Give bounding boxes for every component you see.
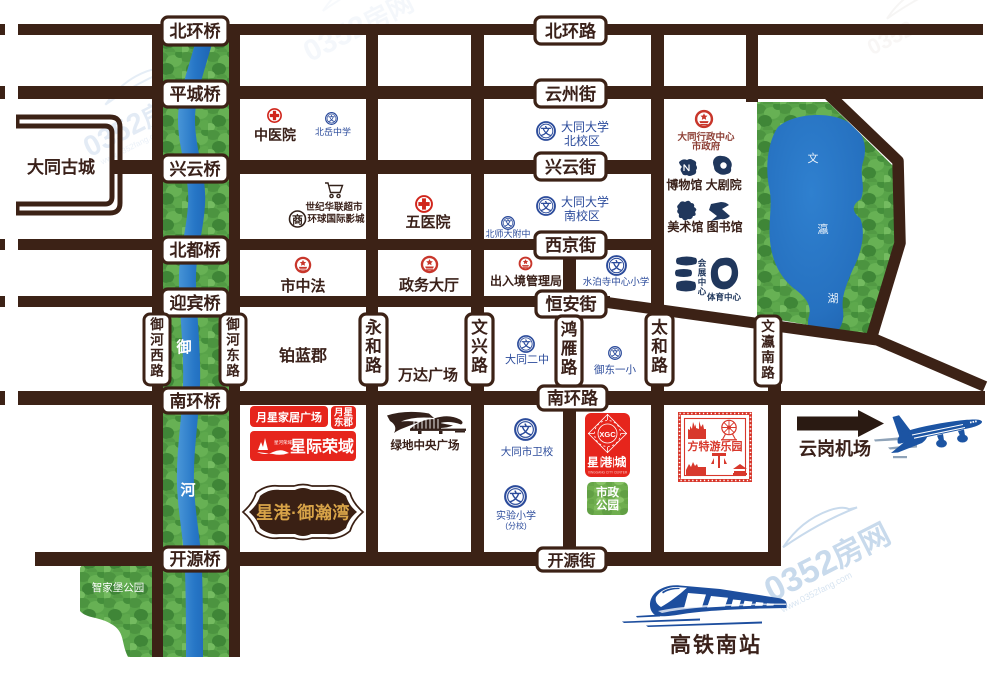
svg-text:月星家居广场: 月星家居广场 [255, 410, 322, 424]
svg-text:兴云桥: 兴云桥 [170, 160, 222, 179]
svg-text:市中法: 市中法 [280, 277, 325, 295]
svg-text:商: 商 [292, 213, 303, 227]
svg-text:平城桥: 平城桥 [170, 85, 222, 104]
svg-text:大同二中: 大同二中 [505, 352, 549, 366]
svg-text:五医院: 五医院 [405, 213, 450, 231]
svg-text:湖: 湖 [828, 292, 839, 305]
svg-text:万达广场: 万达广场 [397, 366, 458, 384]
svg-text:北环路: 北环路 [545, 21, 597, 41]
svg-text:星港城: 星港城 [587, 455, 628, 469]
svg-text:会展中心: 会展中心 [697, 258, 707, 297]
svg-text:御东一小: 御东一小 [594, 363, 636, 376]
svg-text:铂蓝郡: 铂蓝郡 [279, 346, 327, 365]
svg-text:月星东郡: 月星东郡 [333, 408, 354, 429]
svg-text:智家堡公园: 智家堡公园 [92, 581, 145, 594]
svg-text:星际荣域: 星际荣域 [290, 437, 354, 456]
svg-text:瀛: 瀛 [818, 222, 829, 236]
svg-text:御: 御 [175, 338, 191, 356]
svg-text:御河东路: 御河东路 [225, 316, 240, 379]
svg-text:美术馆 图书馆: 美术馆 图书馆 [667, 219, 742, 234]
svg-text:大同市卫校: 大同市卫校 [501, 445, 554, 458]
svg-text:文: 文 [808, 151, 819, 165]
svg-text:云州街: 云州街 [545, 84, 596, 104]
svg-text:出入境管理局: 出入境管理局 [490, 273, 562, 288]
svg-text:政务大厅: 政务大厅 [399, 276, 459, 294]
svg-text:博物馆 大剧院: 博物馆 大剧院 [666, 177, 741, 192]
svg-text:太和路: 太和路 [651, 317, 668, 375]
svg-text:方特游乐园: 方特游乐园 [688, 439, 743, 453]
svg-text:永和路: 永和路 [364, 317, 382, 375]
svg-text:兴云街: 兴云街 [545, 157, 596, 177]
svg-text:北都桥: 北都桥 [170, 240, 222, 260]
svg-text:文瀛南路: 文瀛南路 [761, 318, 775, 381]
svg-text:御河西路: 御河西路 [149, 316, 164, 379]
svg-text:XINGGANG CITY CENTER: XINGGANG CITY CENTER [588, 471, 628, 475]
svg-text:绿地中央广场: 绿地中央广场 [391, 438, 460, 452]
svg-text:文兴路: 文兴路 [471, 317, 488, 375]
svg-text:南环桥: 南环桥 [170, 391, 222, 411]
svg-text:XGC: XGC [599, 430, 616, 439]
svg-text:中医院: 中医院 [254, 127, 296, 143]
svg-text:西京街: 西京街 [545, 235, 596, 255]
svg-text:星港·御瀚湾: 星港·御瀚湾 [256, 503, 350, 523]
svg-text:鸿雁路: 鸿雁路 [561, 319, 578, 377]
svg-text:云岗机场: 云岗机场 [799, 438, 871, 459]
svg-text:水泊寺中心小学: 水泊寺中心小学 [583, 276, 650, 288]
svg-text:高铁南站: 高铁南站 [670, 633, 762, 657]
svg-text:南环路: 南环路 [547, 388, 599, 408]
svg-text:大同古城: 大同古城 [27, 157, 95, 177]
svg-text:北师大附中: 北师大附中 [485, 228, 530, 239]
svg-text:体育中心: 体育中心 [707, 292, 742, 302]
svg-text:迎宾桥: 迎宾桥 [170, 293, 222, 313]
svg-text:开源街: 开源街 [547, 551, 595, 570]
svg-text:北岳中学: 北岳中学 [315, 126, 351, 137]
svg-text:北环桥: 北环桥 [170, 22, 222, 41]
svg-text:河: 河 [180, 481, 195, 499]
svg-text:市政公园: 市政公园 [596, 485, 619, 512]
svg-text:开源桥: 开源桥 [170, 549, 222, 569]
svg-text:恒安街: 恒安街 [546, 294, 597, 314]
